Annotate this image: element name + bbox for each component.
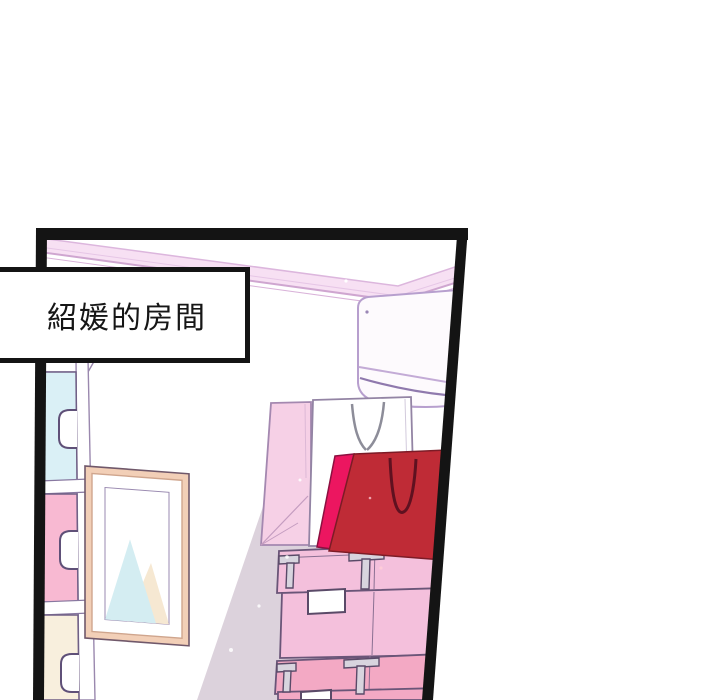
drawer-handle-top — [59, 410, 77, 448]
storage-box-bottom — [275, 654, 442, 700]
box-bottom-clip-left — [283, 671, 291, 692]
drawer-handle-middle — [60, 531, 78, 569]
panel-border-top — [36, 228, 468, 240]
ac-indicator-dot — [365, 310, 368, 313]
box-top-clip-left — [286, 563, 294, 588]
picture-frame — [85, 466, 189, 646]
sparkle-dot — [229, 648, 233, 652]
box-bottom-label — [301, 690, 331, 700]
sparkle-dot — [285, 555, 289, 559]
box-bottom-clip-center — [356, 666, 365, 694]
sparkle-dot — [379, 566, 382, 569]
sparkle-dot — [257, 604, 260, 607]
box-top-body — [280, 588, 444, 658]
caption-text: 紹媛的房間 — [0, 293, 207, 337]
storage-box-top — [277, 544, 446, 658]
sparkle-dot — [369, 497, 372, 500]
sparkle-dot — [339, 591, 342, 594]
ceiling-sparkle — [344, 279, 347, 282]
drawer-handle-bottom — [61, 654, 79, 692]
shopping-bag-red — [317, 450, 447, 560]
dresser-rail-1 — [40, 479, 89, 494]
box-top-clip-center — [361, 559, 370, 589]
dresser-rail-2 — [40, 600, 90, 615]
comic-page: 紹媛的房間 — [0, 0, 720, 700]
sparkle-dot — [299, 479, 302, 482]
caption-box: 紹媛的房間 — [0, 267, 250, 363]
